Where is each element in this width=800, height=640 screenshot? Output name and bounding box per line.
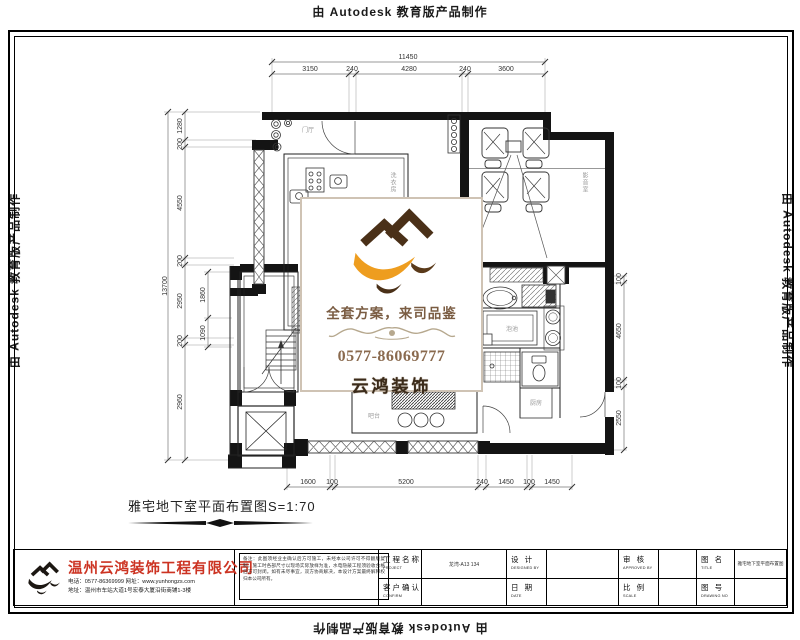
dim-left-2: 200: [177, 138, 184, 150]
date-sub: DATE: [511, 594, 546, 598]
ornament-divider: [327, 325, 457, 341]
sink: [546, 310, 560, 324]
cell-confirm-value: [421, 578, 506, 605]
bar-stool: [398, 413, 412, 427]
dim-left-4: 200: [177, 255, 184, 267]
room-label-laundry: 洗衣房: [388, 172, 397, 193]
dim-top-2: 240: [346, 66, 358, 73]
scale-label: 比 例: [623, 582, 658, 593]
cell-no-label: 图 号 DRAWING NO: [696, 578, 734, 605]
confirm-label: 客户确认: [383, 582, 421, 593]
cell-no-value: [734, 578, 786, 605]
dim-left-7: 2960: [177, 394, 184, 410]
title-block: 温州云鸿装饰工程有限公司 电话：0577-86369999 网址：www.yun…: [13, 549, 787, 606]
bar-stool: [430, 413, 444, 427]
dim-top-total: 11450: [399, 54, 418, 61]
hatched-wall: [490, 268, 543, 282]
title-block-notes: 备注：此图须经业主确认后方可施工，未经本公司许可不得翻版复制。施工时各部尺寸以现…: [239, 553, 389, 600]
drawing-caption-text: 雅宅地下室平面布置图S=1:70: [128, 496, 316, 515]
dim-left-inner-2: 1090: [200, 325, 207, 341]
company-contact: 电话：0577-86369999 网址：www.yunhongzs.com 地址…: [68, 578, 195, 596]
caption-underline: [128, 519, 313, 528]
dim-right-1: 100: [616, 273, 623, 285]
cell-approve-label: 审 核 APPROVED BY: [618, 550, 658, 578]
cell-project-value: 龙湾-A13 134: [421, 550, 506, 578]
company-name: 温州云鸿装饰工程有限公司: [68, 557, 254, 578]
no-label: 图 号: [701, 582, 734, 593]
wine-rack: [448, 115, 460, 153]
dim-left-inner-1: 1860: [200, 287, 207, 303]
dim-bottom-7: 1450: [544, 479, 560, 486]
drawing-sheet: 由 Autodesk 教育版产品制作 由 Autodesk 教育版产品制作 由 …: [0, 0, 800, 640]
title-sub: TITLE: [701, 566, 734, 570]
cell-date-label: 日 期 DATE: [506, 578, 546, 605]
cell-confirm-label: 客户确认 CONFIRM: [378, 578, 421, 605]
no-sub: DRAWING NO: [701, 594, 734, 598]
dim-top-1: 3150: [302, 66, 318, 73]
dim-right-3: 100: [616, 377, 623, 389]
dim-top-5: 3600: [498, 66, 514, 73]
dim-left-total: 13700: [162, 276, 169, 296]
dim-right-4: 2550: [616, 410, 623, 426]
watermark-slogan: 全套方案，来司品鉴: [302, 302, 481, 322]
dim-top-4: 240: [459, 66, 471, 73]
project-label: 工程名称: [383, 554, 421, 565]
room-label-kitchen: 厨房: [530, 399, 542, 407]
autodesk-watermark-top: 由 Autodesk 教育版产品制作: [260, 3, 540, 20]
cell-design-label: 设 计 DESIGNED BY: [506, 550, 546, 578]
dim-bottom-1: 1600: [300, 479, 316, 486]
company-logo-icon: [332, 203, 452, 299]
design-sub: DESIGNED BY: [511, 566, 546, 570]
dim-bottom-6: 100: [523, 479, 535, 486]
vanity: [544, 306, 564, 350]
dim-left-5: 2950: [177, 293, 184, 309]
approve-sub: APPROVED BY: [623, 566, 658, 570]
confirm-sub: CONFIRM: [383, 594, 421, 598]
date-label: 日 期: [511, 582, 546, 593]
elevator: [238, 406, 294, 456]
sink: [546, 331, 561, 346]
dim-top-3: 4280: [401, 66, 417, 73]
project-value: 龙湾-A13 134: [449, 561, 479, 568]
project-sub: PROJECT: [383, 566, 421, 570]
room-label-theater: 影音室: [580, 172, 589, 193]
dim-bottom-5: 1450: [498, 479, 514, 486]
dim-bottom-3: 5200: [398, 479, 414, 486]
autodesk-watermark-bottom: 由 Autodesk 教育版产品制作: [260, 620, 540, 637]
company-watermark: 全套方案，来司品鉴 0577-86069777 云鸿装饰: [300, 197, 483, 392]
toilet: [533, 365, 545, 381]
cell-design-value: [546, 550, 618, 578]
cell-project-label: 工程名称 PROJECT: [378, 550, 421, 578]
approve-label: 审 核: [623, 554, 658, 565]
room-label-bar: 吧台: [368, 412, 380, 420]
company-logo-small-icon: [21, 559, 65, 597]
shower: [484, 352, 520, 382]
bath-fixtures: [483, 285, 564, 418]
room-label-pool: 泡池: [506, 325, 518, 333]
cell-approve-value: [658, 550, 696, 578]
cell-title-value: 雅宅地下室平面布置图: [734, 550, 786, 578]
dim-bottom-4: 240: [476, 479, 488, 486]
dim-left-3: 4550: [177, 195, 184, 211]
design-label: 设 计: [511, 554, 546, 565]
bar-area: [392, 392, 455, 427]
room-label-entry: 门厅: [302, 126, 314, 134]
title-label: 图 名: [701, 554, 734, 565]
title-block-company: 温州云鸿装饰工程有限公司 电话：0577-86369999 网址：www.yun…: [14, 550, 235, 605]
bar-stool: [414, 413, 428, 427]
dim-right-2: 4650: [616, 323, 623, 339]
drawing-caption: 雅宅地下室平面布置图S=1:70: [128, 496, 316, 533]
title-block-row-divider: [378, 578, 788, 579]
dim-left-6: 200: [177, 335, 184, 347]
cell-scale-label: 比 例 SCALE: [618, 578, 658, 605]
watermark-brand: 云鸿装饰: [302, 372, 481, 397]
scale-sub: SCALE: [623, 594, 658, 598]
company-phone-line: 电话：0577-86369999 网址：www.yunhongzs.com: [68, 578, 195, 587]
cell-title-label: 图 名 TITLE: [696, 550, 734, 578]
watermark-phone: 0577-86069777: [302, 348, 481, 366]
company-address-line: 地址：温州市车站大道1号宏泰大厦沿街商铺1-3楼: [68, 587, 195, 596]
cell-date-value: [546, 578, 618, 605]
cell-scale-value: [658, 578, 696, 605]
title-value: 雅宅地下室平面布置图: [738, 561, 784, 567]
dim-bottom-2: 100: [326, 479, 338, 486]
theater-seats: [469, 128, 605, 212]
dim-left-1: 1280: [177, 118, 184, 134]
